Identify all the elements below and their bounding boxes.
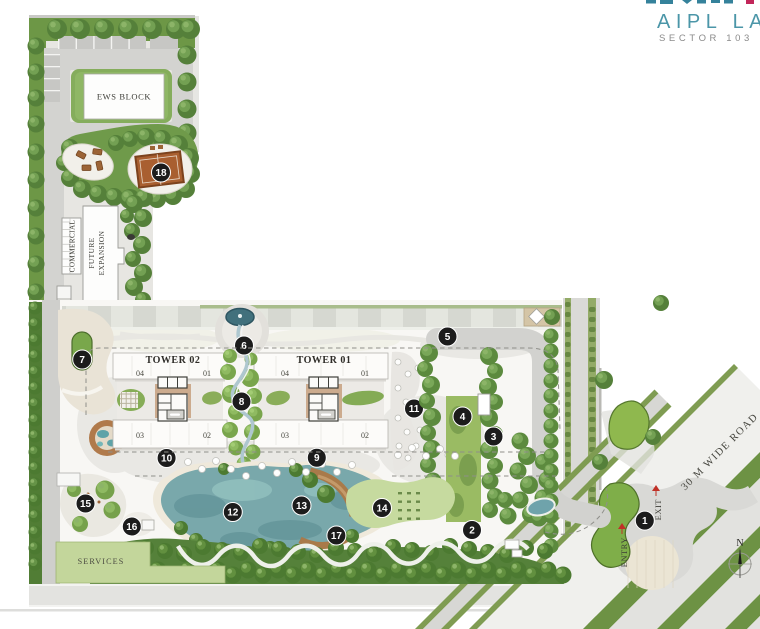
svg-text:14: 14 bbox=[376, 503, 388, 514]
svg-text:3: 3 bbox=[491, 432, 497, 443]
svg-text:8: 8 bbox=[239, 397, 245, 408]
svg-text:6: 6 bbox=[241, 341, 247, 352]
svg-text:02: 02 bbox=[361, 431, 369, 440]
svg-text:ENTRY: ENTRY bbox=[619, 537, 629, 567]
svg-text:5: 5 bbox=[445, 332, 451, 343]
svg-text:EWS BLOCK: EWS BLOCK bbox=[97, 92, 152, 102]
svg-text:10: 10 bbox=[161, 453, 173, 464]
svg-text:17: 17 bbox=[331, 531, 343, 542]
svg-text:18: 18 bbox=[155, 168, 167, 179]
svg-text:COMMERCIAL: COMMERCIAL bbox=[69, 220, 77, 273]
svg-text:04: 04 bbox=[136, 369, 144, 378]
svg-text:N: N bbox=[736, 538, 743, 549]
svg-text:16: 16 bbox=[126, 522, 138, 533]
svg-text:2: 2 bbox=[469, 525, 475, 536]
svg-text:4: 4 bbox=[460, 412, 466, 423]
svg-text:01: 01 bbox=[203, 369, 211, 378]
svg-text:SERVICES: SERVICES bbox=[78, 557, 125, 566]
svg-text:13: 13 bbox=[296, 501, 308, 512]
svg-text:03: 03 bbox=[281, 431, 289, 440]
svg-text:9: 9 bbox=[314, 453, 320, 464]
svg-text:7: 7 bbox=[79, 355, 85, 366]
svg-text:02: 02 bbox=[203, 431, 211, 440]
svg-text:TOWER 01: TOWER 01 bbox=[297, 355, 352, 366]
svg-text:FUTURE: FUTURE bbox=[87, 237, 96, 268]
svg-text:03: 03 bbox=[136, 431, 144, 440]
svg-text:1: 1 bbox=[642, 516, 648, 527]
svg-text:15: 15 bbox=[80, 499, 92, 510]
svg-text:04: 04 bbox=[281, 369, 289, 378]
svg-text:01: 01 bbox=[361, 369, 369, 378]
svg-text:11: 11 bbox=[409, 404, 420, 415]
svg-text:EXIT: EXIT bbox=[653, 499, 663, 521]
svg-text:SECTOR 103: SECTOR 103 bbox=[659, 33, 753, 44]
svg-text:12: 12 bbox=[227, 507, 239, 518]
svg-text:AIPL LA: AIPL LA bbox=[657, 11, 760, 33]
svg-text:TOWER 02: TOWER 02 bbox=[146, 355, 201, 366]
svg-text:EXPANSION: EXPANSION bbox=[97, 230, 106, 275]
